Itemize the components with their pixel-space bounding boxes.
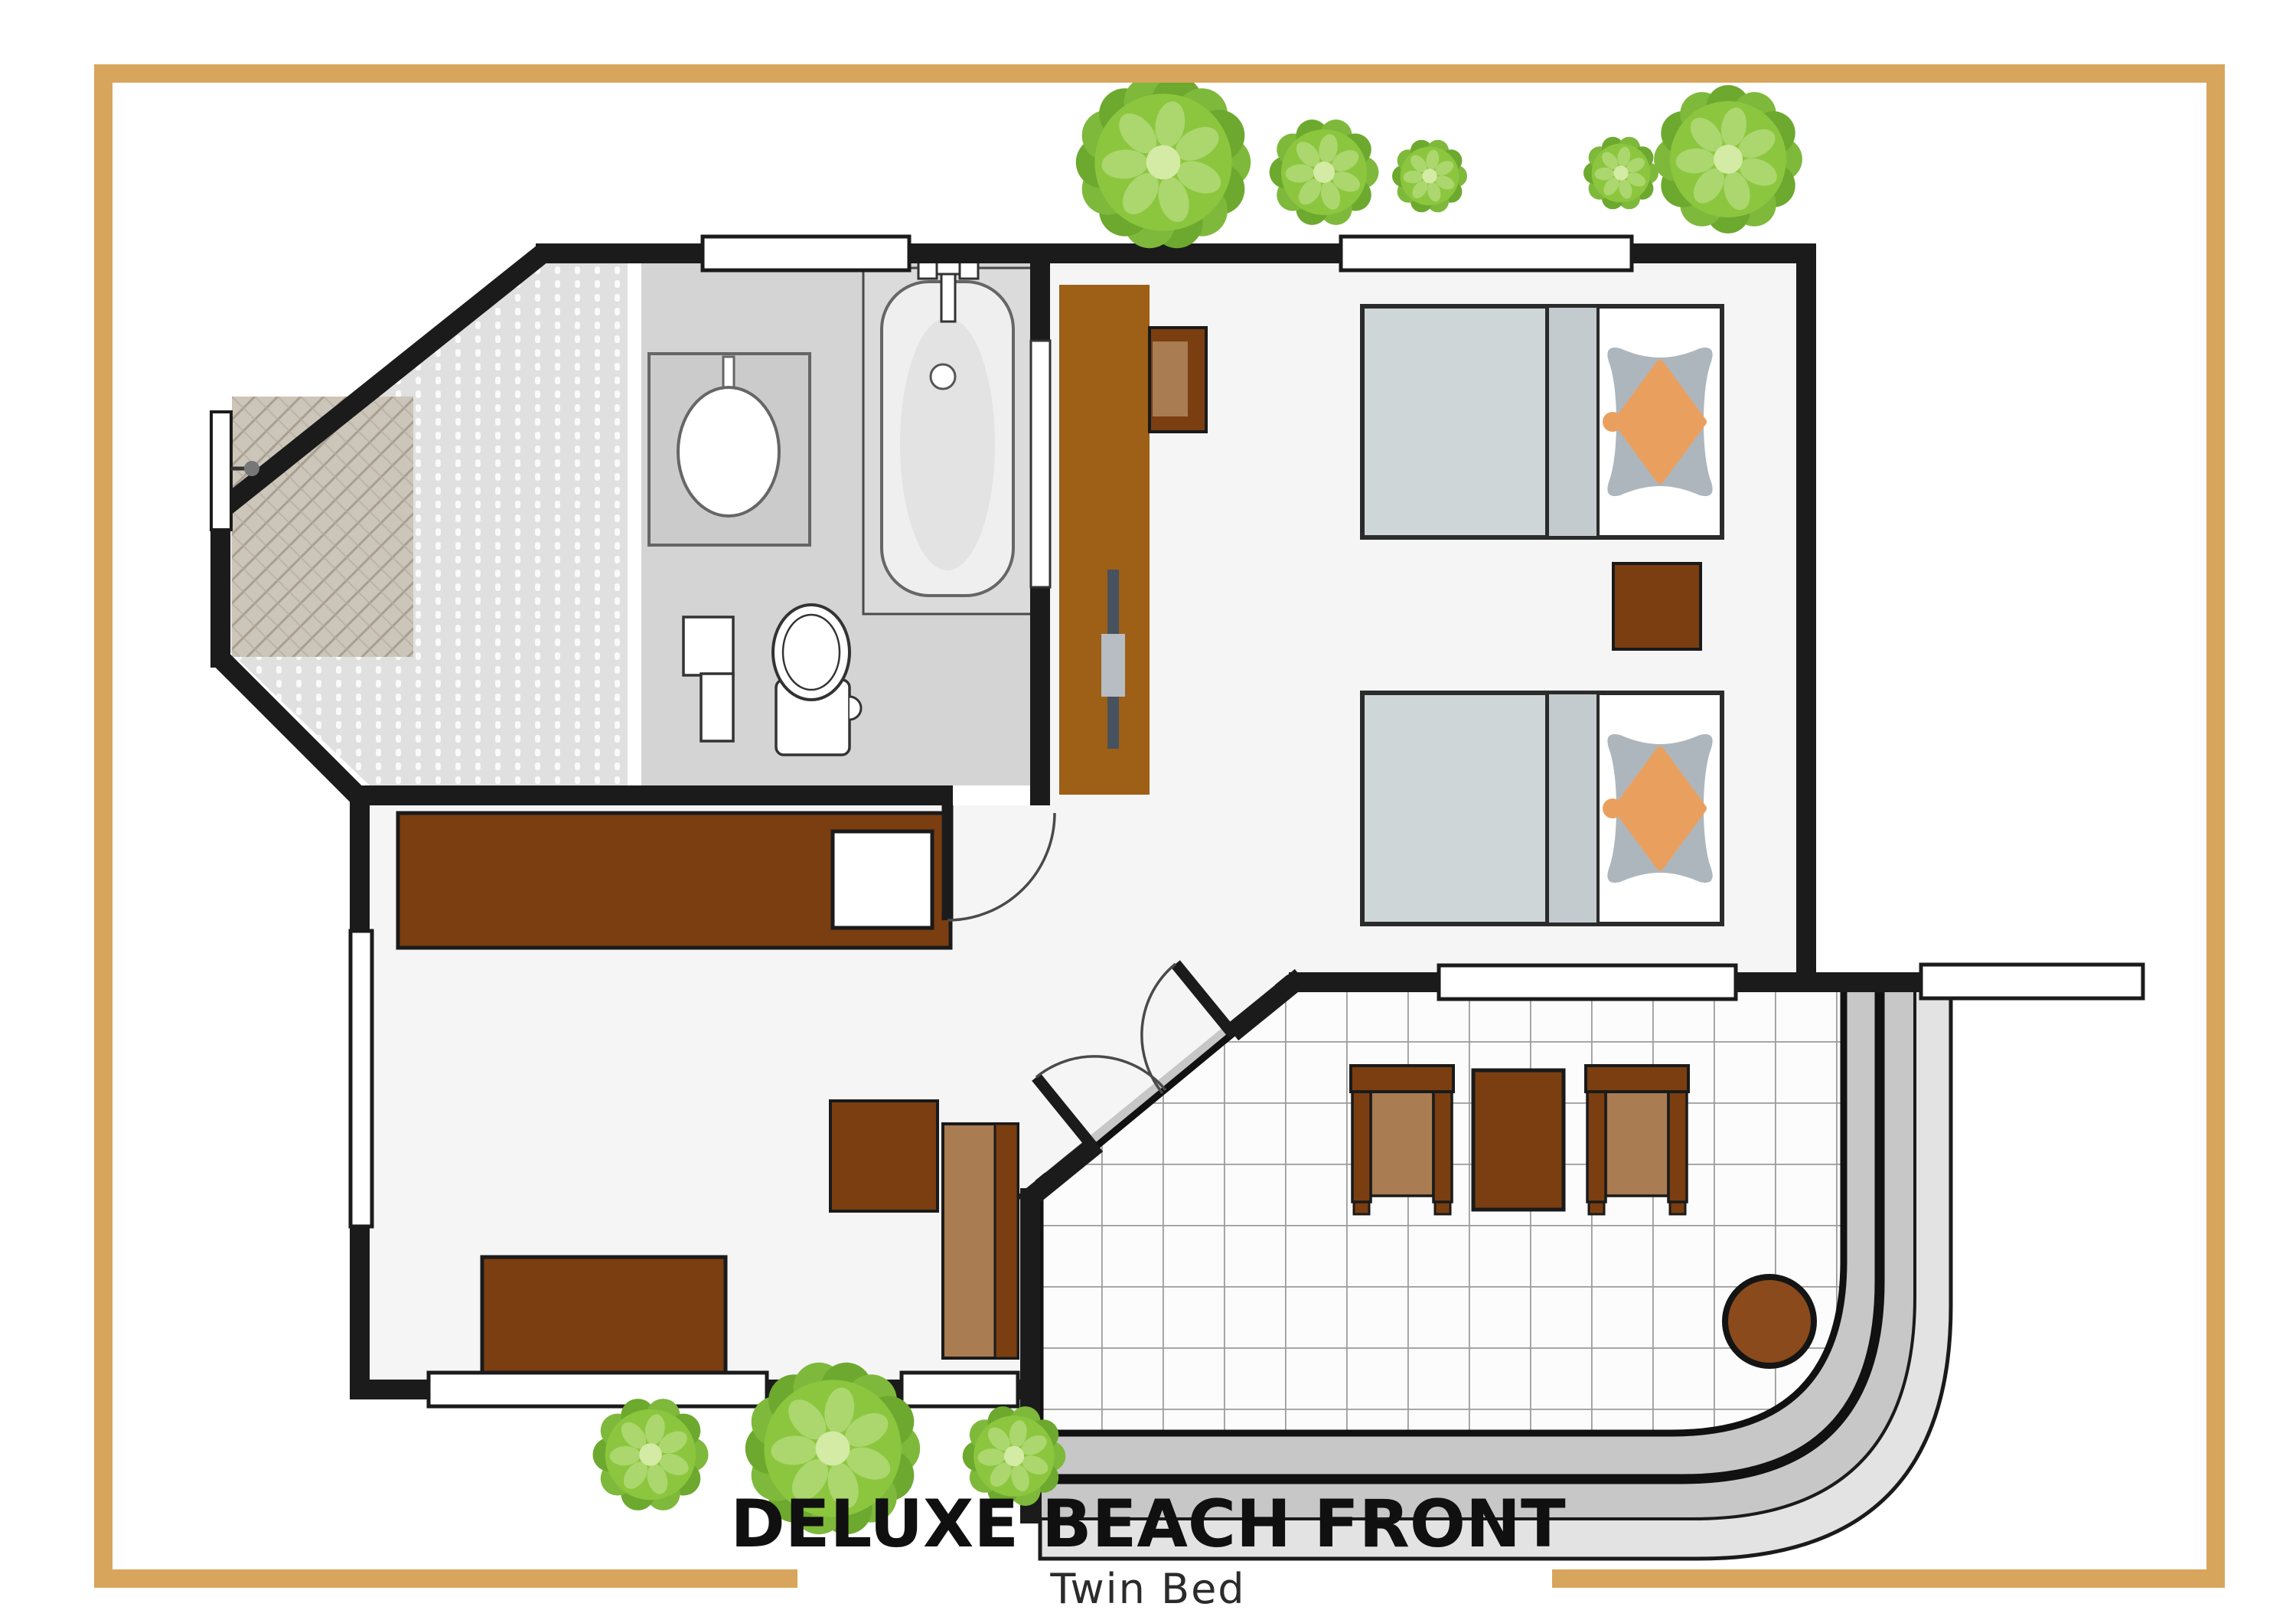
terrace-armchair-left [1351, 1066, 1453, 1214]
window-top-1 [703, 237, 909, 270]
tree-icon [1076, 77, 1251, 248]
tree-icon [1654, 85, 1802, 233]
wardrobe [1059, 285, 1150, 795]
bathroom-sliding-door [1031, 341, 1050, 587]
plan-subtitle: Twin Bed [0, 1565, 2296, 1613]
tv-inset [833, 831, 932, 928]
nightstand [1613, 563, 1701, 649]
terrace-table [1473, 1070, 1564, 1210]
side-table [943, 1124, 1018, 1358]
tv-console [398, 813, 951, 948]
sink-basin [678, 387, 779, 516]
title-block: DELUXE BEACH FRONT Twin Bed [0, 1490, 2296, 1613]
tree-icon [1583, 137, 1658, 210]
desk-chair [1150, 328, 1206, 432]
window-terrace-east [1921, 965, 2143, 998]
tree-icon [1270, 119, 1379, 225]
window-bottom-2 [902, 1373, 1018, 1406]
coffee-table [482, 1257, 726, 1378]
round-side-table [1725, 1277, 1814, 1366]
terrace-armchair-right [1586, 1066, 1688, 1214]
window-living-left [351, 931, 372, 1226]
window-top-2 [1341, 237, 1632, 270]
twin-bed-2 [1362, 693, 1722, 924]
twin-bed-1 [1362, 306, 1722, 537]
bathtub-drain [931, 364, 955, 389]
bathtub [882, 256, 1013, 596]
floor-plan-poster: DELUXE BEACH FRONT Twin Bed [0, 0, 2296, 1623]
window-bottom-1 [429, 1373, 767, 1406]
sink-counter [649, 354, 810, 545]
plan-title: DELUXE BEACH FRONT [0, 1490, 2296, 1559]
window-terrace-top [1439, 965, 1736, 999]
lounge-chair [830, 1101, 938, 1211]
tree-icon [1392, 140, 1467, 213]
